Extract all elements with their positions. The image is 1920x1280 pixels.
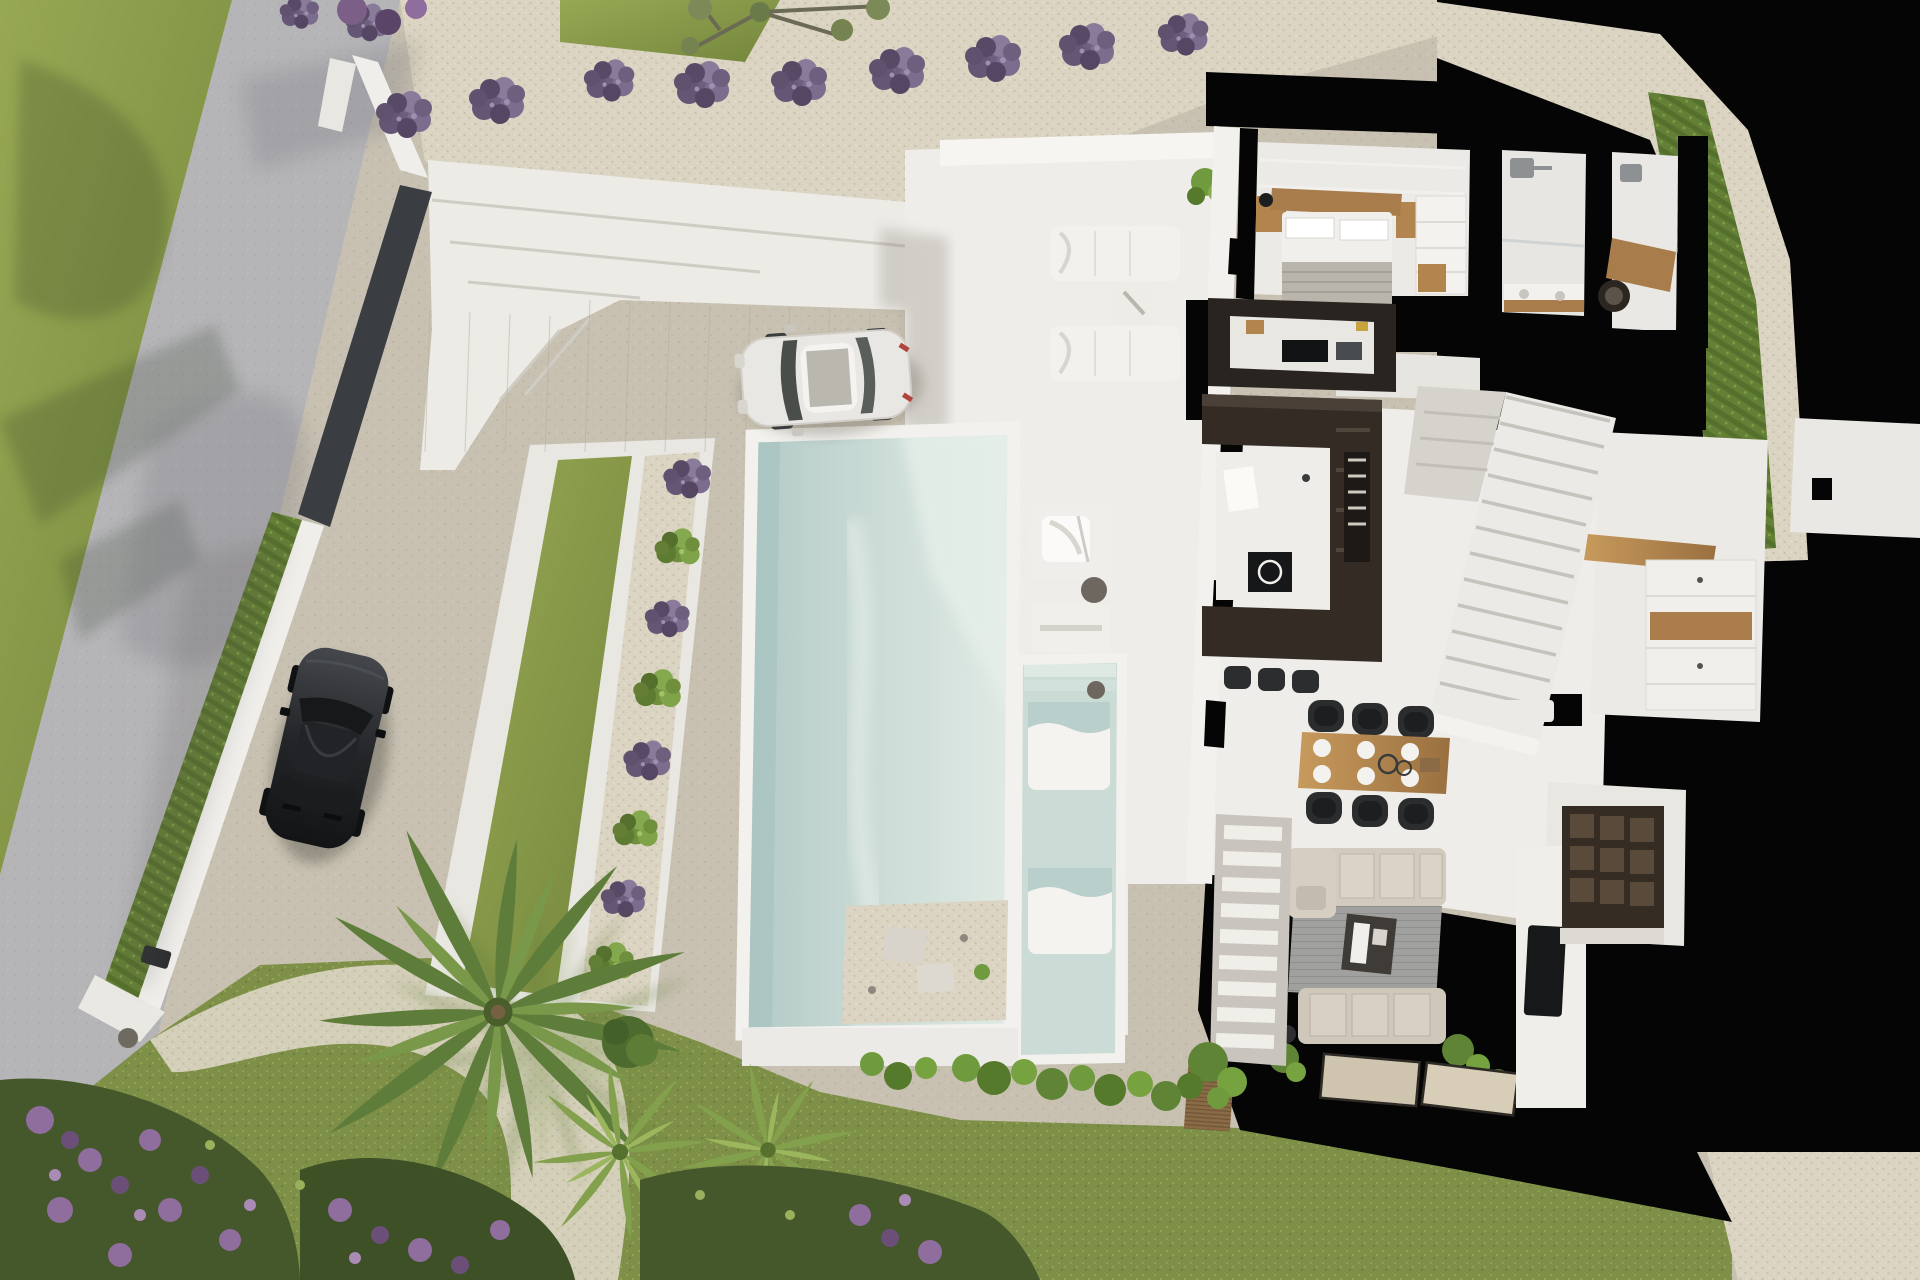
garden-stone <box>118 1028 138 1048</box>
shower-head-2 <box>1620 164 1642 182</box>
pool-side-table <box>1087 681 1105 699</box>
sconce-left <box>1259 193 1273 207</box>
fireplace-frame <box>1341 914 1397 975</box>
outdoor-armchair <box>1028 506 1112 580</box>
shower-head <box>1510 158 1534 178</box>
wardrobe-niche <box>1650 612 1752 640</box>
kids-pool <box>1016 658 1122 1060</box>
island-runner <box>1223 466 1259 512</box>
round-outdoor-rug <box>1081 577 1107 603</box>
aerial-villa-render <box>0 0 1920 1280</box>
bar-stools <box>1224 666 1319 693</box>
site-plan <box>0 0 1920 1280</box>
utility-closet <box>1560 806 1664 944</box>
east-room-floor <box>1790 418 1920 538</box>
east-room-wall <box>1812 478 1832 500</box>
doormat-1 <box>1320 1054 1419 1106</box>
kitchen-upper <box>1208 298 1396 392</box>
cooktop <box>1248 552 1292 592</box>
kitchen <box>1202 394 1382 693</box>
sofa-second <box>1298 988 1446 1044</box>
bench <box>1476 700 1554 722</box>
tv <box>1524 925 1567 1017</box>
stepping-stones <box>842 900 1008 1024</box>
